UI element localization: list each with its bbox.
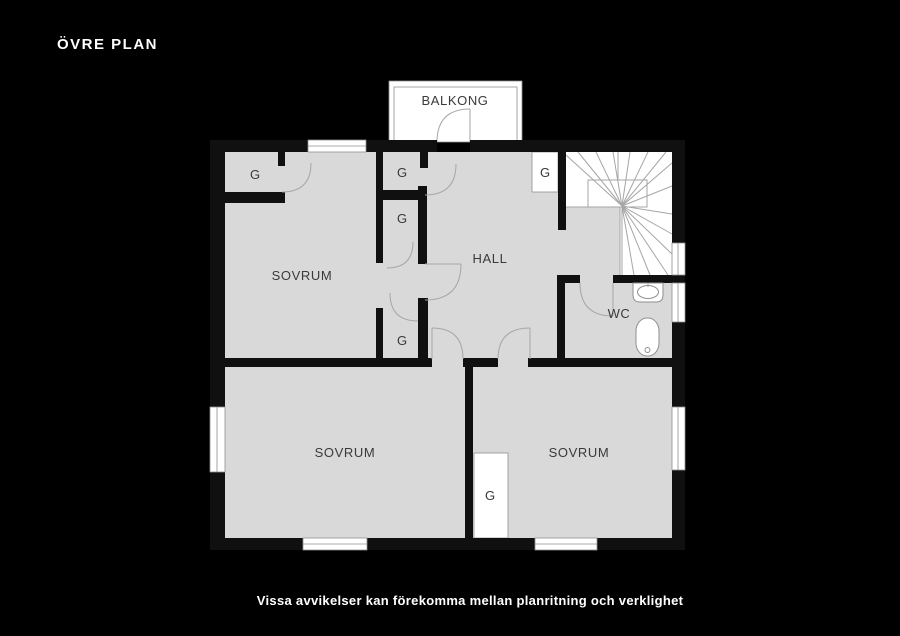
disclaimer-caption: Vissa avvikelser kan förekomma mellan pl… <box>0 593 900 608</box>
room-label-wc: WC <box>608 306 631 321</box>
closet-label-by-stairs: G <box>540 165 550 180</box>
closet-label-top-left: G <box>250 167 260 182</box>
balcony <box>389 81 522 142</box>
floor-plan: BALKONG SOVRUM HALL WC SOVRUM SOVRUM G G… <box>0 0 900 636</box>
window-bottom-left <box>303 538 367 550</box>
toilet <box>636 318 659 356</box>
balcony-label: BALKONG <box>421 93 488 108</box>
window-bottom-right <box>535 538 597 550</box>
closet-label-mid-top: G <box>397 165 407 180</box>
closet-label-bedroom-right: G <box>485 488 495 503</box>
window-right-bedroom <box>672 407 685 470</box>
room-label-bedroom-top: SOVRUM <box>272 268 333 283</box>
room-label-hall: HALL <box>473 251 508 266</box>
closet-label-mid-second: G <box>397 211 407 226</box>
window-right-wc <box>672 283 685 322</box>
room-label-bedroom-bottom-left: SOVRUM <box>315 445 376 460</box>
window-left <box>210 407 225 472</box>
closet-label-mid-bottom: G <box>397 333 407 348</box>
floor-area <box>225 152 672 538</box>
sink <box>633 283 663 302</box>
window-top <box>308 140 366 152</box>
window-right-stairs <box>672 243 685 275</box>
room-label-bedroom-bottom-right: SOVRUM <box>549 445 610 460</box>
